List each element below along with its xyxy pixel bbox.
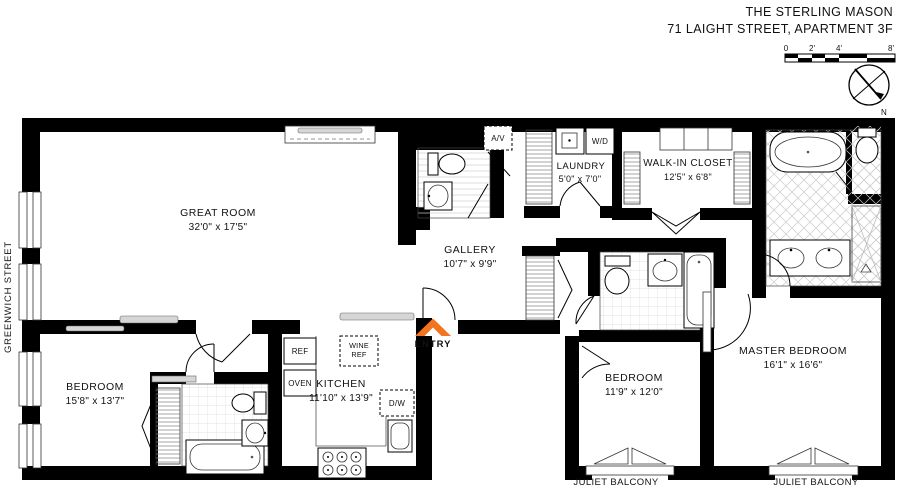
soaking-tub-icon	[770, 132, 846, 172]
great-room-label: GREAT ROOM	[180, 207, 256, 219]
gallery-closet	[526, 256, 572, 320]
toilet-icon	[232, 392, 266, 414]
juliet-balcony-2: JULIET BALCONY	[769, 448, 859, 487]
shower-icon	[852, 206, 881, 282]
low-cabinet	[66, 326, 124, 331]
cooktop-icon	[318, 448, 366, 478]
french-door-left	[594, 448, 628, 464]
compass-north-label: N	[881, 108, 887, 117]
dw-label: D/W	[389, 399, 405, 408]
powder-room	[418, 148, 490, 218]
scale-tick-8: 8'	[888, 44, 894, 53]
room-kitchen: REF OVEN WINE REF D/W KITCHEN 11'10" x 1…	[284, 336, 414, 478]
wine-ref-icon: WINE REF	[340, 336, 378, 366]
sink-icon	[648, 254, 682, 286]
refrigerator-icon: REF	[284, 338, 316, 364]
great-room-dims: 32'0" x 17'5"	[189, 222, 248, 233]
av-label: A/V	[491, 134, 505, 143]
laundry-label: LAUNDRY	[557, 161, 606, 172]
french-door-left	[777, 448, 811, 464]
room-master-bedroom: MASTER BEDROOM 16'1" x 16'6"	[703, 292, 847, 371]
wine-ref-label-1: WINE	[349, 341, 369, 350]
address-line: 71 LAIGHT STREET, APARTMENT 3F	[667, 22, 893, 36]
toilet-icon	[605, 256, 630, 294]
kitchen-sink-icon	[388, 420, 412, 452]
dryer-icon: W/D	[586, 128, 614, 154]
master-bedroom-label: MASTER BEDROOM	[739, 345, 847, 357]
floor-plan-page: THE STERLING MASON 71 LAIGHT STREET, APA…	[0, 0, 900, 487]
wic-dims: 12'5" x 6'8"	[664, 172, 712, 182]
window-great-room-2	[19, 264, 41, 320]
laundry-door-leaf	[580, 182, 600, 206]
bedroom1-dims: 15'8" x 13'7"	[66, 396, 125, 407]
master-bathroom	[758, 126, 881, 286]
gallery-label: GALLERY	[444, 244, 496, 256]
closet-shelves-left	[624, 152, 640, 204]
scale-bar: 0 2' 4' 8'	[784, 44, 895, 62]
wine-ref-label-2: REF	[351, 350, 367, 359]
bedroom1-label: BEDROOM	[66, 381, 124, 393]
ref-label: REF	[292, 347, 309, 356]
juliet-balcony-1: JULIET BALCONY	[573, 448, 674, 487]
french-door-right	[815, 448, 849, 464]
bedroom2-dims: 11'9" x 12'0"	[605, 387, 663, 398]
room-bedroom-2: BEDROOM 11'9" x 12'0"	[582, 346, 663, 398]
gallery-closet-doors	[558, 260, 572, 318]
wd-label: W/D	[592, 137, 608, 146]
sink-icon	[242, 420, 268, 446]
scale-tick-2: 2'	[809, 44, 815, 53]
toilet-icon	[428, 153, 465, 175]
french-door-right	[632, 448, 666, 464]
entry-label: ENTRY	[415, 339, 452, 350]
bedroom1-door-leaf	[222, 334, 250, 362]
street-label: GREENWICH STREET	[3, 241, 14, 353]
closet-hanging-rod	[660, 128, 732, 150]
washer-icon	[556, 128, 584, 154]
building-title: THE STERLING MASON	[746, 5, 894, 19]
bedroom2-door-leaf	[582, 346, 610, 364]
room-gallery: GALLERY 10'7" x 9'9"	[423, 244, 497, 320]
juliet-balcony2-label: JULIET BALCONY	[773, 477, 858, 487]
window-bedroom-1a	[19, 352, 41, 406]
bedroom1-closet	[156, 388, 180, 464]
towel-bar	[152, 376, 196, 382]
oven-label: OVEN	[288, 379, 311, 388]
wic-double-doors	[652, 212, 700, 234]
kitchen-label: KITCHEN	[316, 378, 366, 390]
entry-door-swing	[423, 288, 455, 320]
compass-rose: N	[849, 65, 889, 117]
gallery-dims: 10'7" x 9'9"	[444, 259, 497, 270]
wic-label: WALK-IN CLOSET	[643, 158, 732, 169]
closet-shelves-right	[734, 152, 750, 204]
laundry-shelves	[526, 130, 552, 204]
juliet-balcony1-label: JULIET BALCONY	[573, 477, 658, 487]
sink-icon	[424, 182, 452, 210]
scale-tick-4: 4'	[836, 44, 842, 53]
scale-tick-0: 0	[784, 44, 789, 53]
master-door-leaf	[703, 292, 711, 352]
kitchen-peninsula-counter	[340, 313, 414, 320]
room-laundry: W/D LAUNDRY 5'0" x 7'0"	[526, 128, 614, 206]
plan-header: THE STERLING MASON 71 LAIGHT STREET, APA…	[667, 5, 893, 36]
window-great-room-1	[19, 192, 41, 248]
master-bedroom-dims: 16'1" x 16'6"	[764, 360, 823, 371]
console-counter	[120, 316, 178, 323]
bedroom2-label: BEDROOM	[605, 372, 663, 384]
room-great-room: GREAT ROOM 32'0" x 17'5"	[66, 126, 414, 331]
kitchen-dims: 11'10" x 13'9"	[309, 393, 373, 404]
dishwasher-icon: D/W	[380, 390, 414, 416]
window-bedroom-1b	[19, 424, 41, 468]
double-vanity-icon	[770, 240, 850, 276]
